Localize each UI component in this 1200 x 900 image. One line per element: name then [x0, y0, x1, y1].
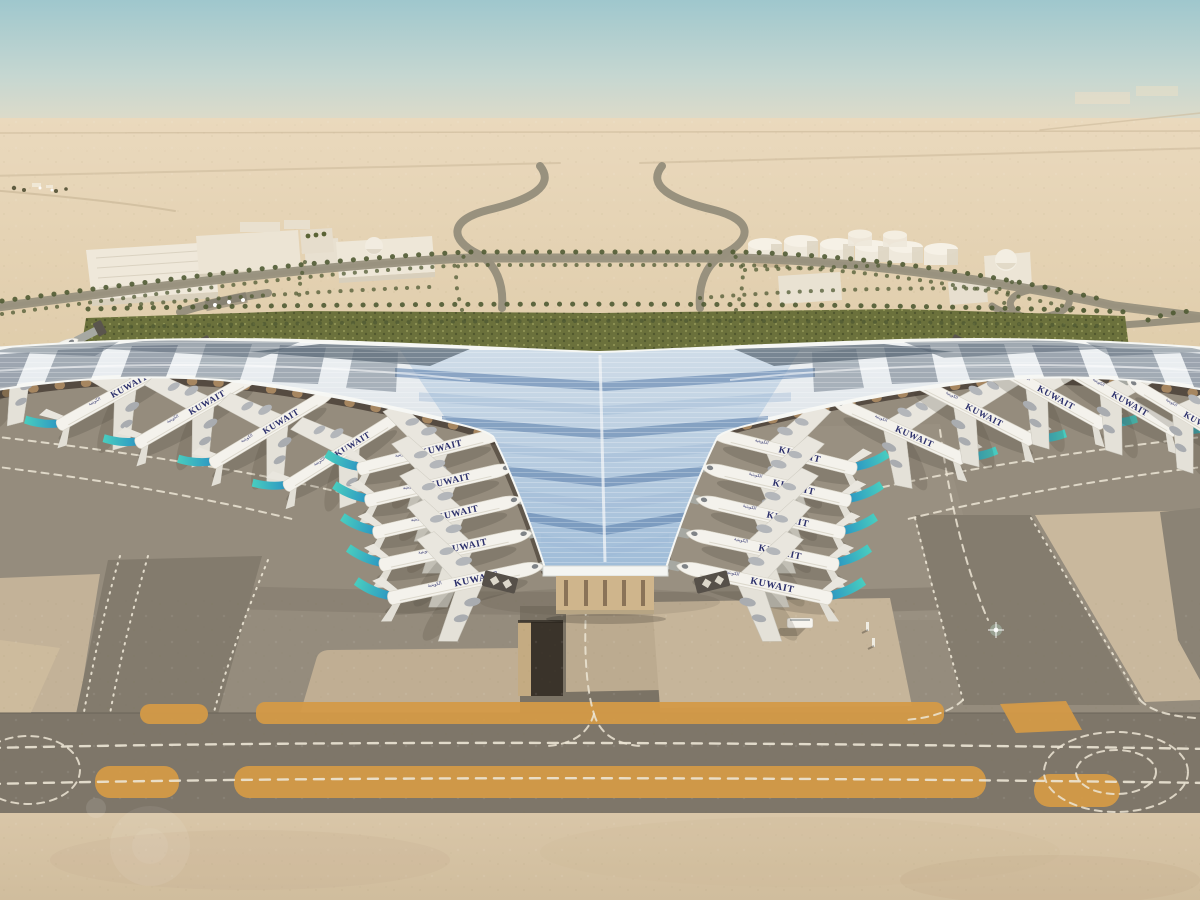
scene-svg: الكويتيةKUWAITالكويتيةKUWAITالكويتيةKUWA…: [0, 0, 1200, 900]
airport-aerial-render: الكويتيةKUWAITالكويتيةKUWAITالكويتيةKUWA…: [0, 0, 1200, 900]
storage-tank: [924, 243, 958, 265]
ochre-shoulder: [256, 702, 944, 724]
ochre-shoulder: [234, 766, 986, 798]
ochre-shoulder: [140, 704, 208, 724]
